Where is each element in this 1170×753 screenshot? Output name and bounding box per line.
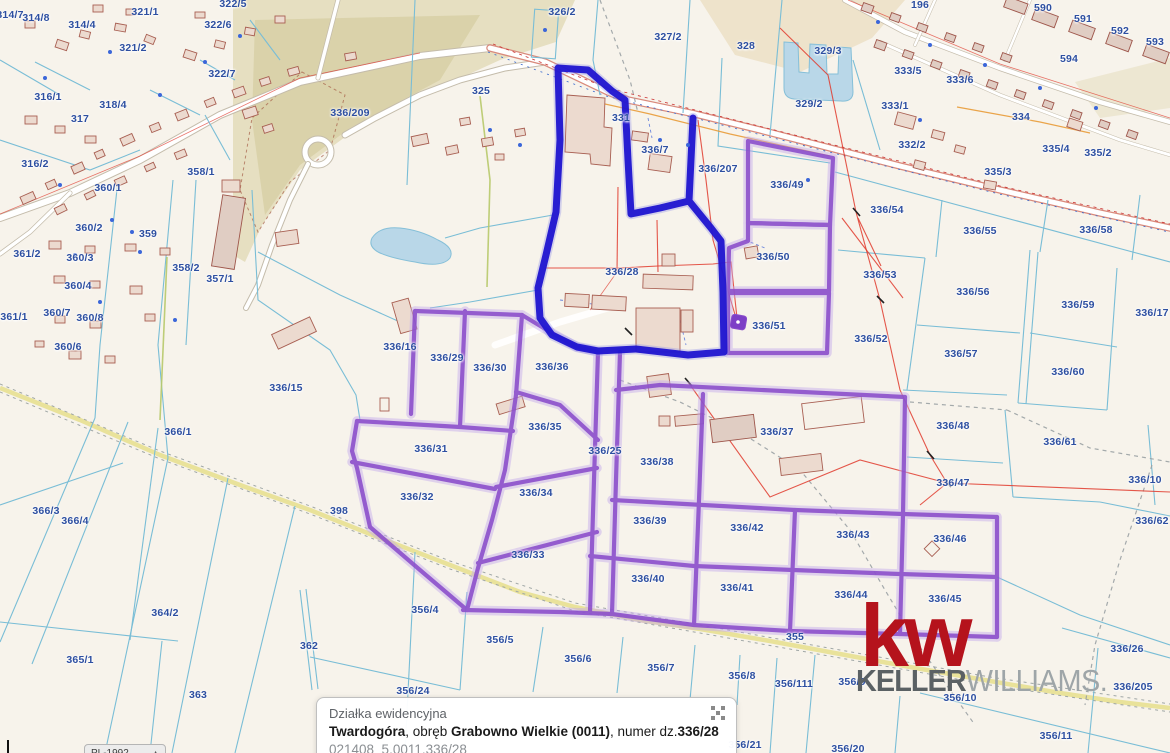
crs-label: PL-1992	[91, 748, 129, 753]
kw-wordmark: KELLERWILLIAMS.	[856, 663, 1051, 699]
popup-parcel-number: 336/28	[678, 724, 719, 739]
keller-williams-logo: kw KELLERWILLIAMS.	[856, 600, 1066, 699]
popup-parcel-id: 021408_5.0011.336/28	[329, 742, 724, 753]
popup-parcel-line: Twardogóra, obręb Grabowno Wielkie (0011…	[329, 724, 724, 739]
popup-town: Twardogóra	[329, 724, 405, 739]
crs-selector[interactable]: PL-1992 ▲	[84, 744, 166, 753]
kw-monogram: kw	[860, 600, 1066, 672]
popup-district: Grabowno Wielkie (0011)	[451, 724, 610, 739]
chevron-up-icon: ▲	[152, 750, 159, 753]
popup-title: Działka ewidencyjna	[329, 706, 724, 721]
scale-bar	[7, 740, 21, 753]
parcel-info-popup: Działka ewidencyjna Twardogóra, obręb Gr…	[316, 697, 737, 753]
map-viewport[interactable]: 314/7314/8314/4321/1322/5322/6321/2322/7…	[0, 0, 1170, 753]
close-icon[interactable]	[710, 706, 726, 722]
